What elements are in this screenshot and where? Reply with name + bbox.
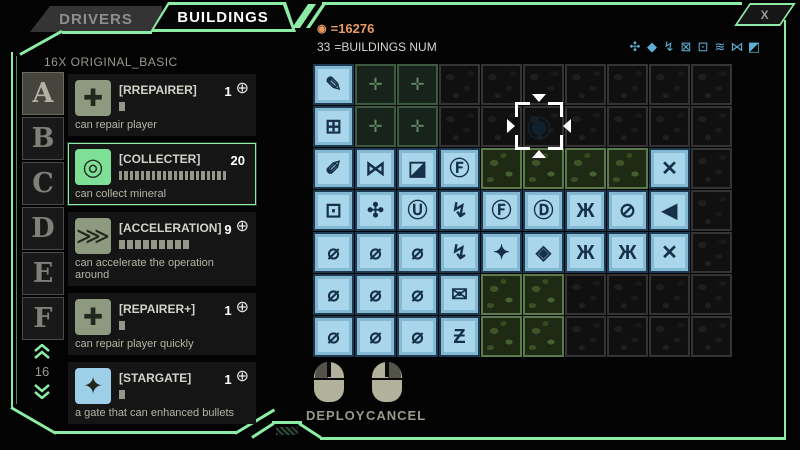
cursor-arrow-icon <box>532 94 546 102</box>
building-description: can accelerate the operation around <box>75 257 249 281</box>
grid-cell-building-tile-r3-c2[interactable]: ⋈ <box>355 148 396 189</box>
building-list: ✚[RREPAIRER]1⊕can repair player◎[COLLECT… <box>68 74 256 424</box>
repairer-icon: ✚ <box>75 80 111 116</box>
building-item-acceleration[interactable]: ⋙[ACCELERATION]9⊕can accelerate the oper… <box>68 212 256 286</box>
letter-tab-a[interactable]: A <box>22 72 64 115</box>
building-description: a gate that can enhanced bullets <box>75 407 249 419</box>
frame-line <box>55 431 237 434</box>
grid-cell-mineral-tile-r6-c5[interactable] <box>481 274 522 315</box>
tile-glyph: ✛ <box>368 76 382 93</box>
tile-glyph: ⊞ <box>325 117 342 137</box>
tile-glyph: ✛ <box>368 118 382 135</box>
tab-drivers[interactable]: DRIVERS <box>30 6 162 32</box>
tile-glyph: ⌀ <box>369 327 381 347</box>
set-header: 16X ORIGINAL_BASIC <box>44 55 178 69</box>
grid-cell-mineral-tile-r3-c5[interactable] <box>481 148 522 189</box>
buildings-count: 33 <box>317 40 330 54</box>
building-name: [STARGATE] <box>119 371 220 385</box>
tile-glyph: ◈ <box>536 243 551 263</box>
count-bar <box>119 102 220 111</box>
add-button[interactable]: ⊕ <box>236 82 249 96</box>
tile-glyph: Ж <box>618 243 636 263</box>
letter-tab-b[interactable]: B <box>22 117 64 160</box>
tile-glyph: ✣ <box>367 201 384 221</box>
building-item-stargate[interactable]: ✦[STARGATE]1⊕a gate that can enhanced bu… <box>68 362 256 424</box>
grid-cell-rock-tile-r6-c8[interactable] <box>607 274 648 315</box>
tile-glyph: ↯ <box>451 243 468 263</box>
scroller: 16 <box>26 344 58 399</box>
building-description: can repair player <box>75 119 249 131</box>
mineral-value: =16276 <box>331 21 375 36</box>
mineral-icon: ◉ <box>317 22 327 35</box>
tile-glyph: ✎ <box>325 75 342 95</box>
grid-cell-building-tile-r4-c4[interactable]: ↯ <box>439 190 480 231</box>
tile-glyph: ⌀ <box>411 243 423 263</box>
cancel-button[interactable]: CANCEL <box>366 408 426 423</box>
letter-tab-e[interactable]: E <box>22 252 64 295</box>
grid-cell-building-tile-r4-c7[interactable]: Ж <box>565 190 606 231</box>
left-mouse-icon <box>314 362 344 402</box>
frame-line <box>784 20 786 438</box>
grid-cell-building-tile-r3-c3[interactable]: ◪ <box>397 148 438 189</box>
add-button[interactable]: ⊕ <box>236 301 249 315</box>
scroll-down-icon[interactable] <box>32 383 52 399</box>
placement-cursor[interactable]: ◉ <box>515 102 563 150</box>
grid-cell-building-tile-r4-c5[interactable]: Ⓕ <box>481 190 522 231</box>
count-bar <box>119 390 220 399</box>
grid-cell-building-tile-r4-c2[interactable]: ✣ <box>355 190 396 231</box>
grid-cell-building-tile-r4-c9[interactable]: ◀ <box>649 190 690 231</box>
grid-cell-building-tile-r5-c8[interactable]: Ж <box>607 232 648 273</box>
tile-glyph: ⌀ <box>411 327 423 347</box>
frame-line <box>320 437 786 440</box>
grid-cell-building-tile-r6-c3[interactable]: ⌀ <box>397 274 438 315</box>
close-button[interactable]: X <box>734 3 796 26</box>
grid-cell-rock-tile-r1-c8[interactable] <box>607 64 648 105</box>
grid-cell-rock-tile-r2-c10[interactable] <box>691 106 732 147</box>
tile-glyph: Ƶ <box>453 327 465 347</box>
grid-cell-rock-tile-r7-c9[interactable] <box>649 316 690 357</box>
grid-cell-building-tile-r4-c3[interactable]: Ⓤ <box>397 190 438 231</box>
tile-glyph: ◀ <box>662 201 677 221</box>
grid-cell-rock-tile-r2-c8[interactable] <box>607 106 648 147</box>
tile-glyph: Ⓓ <box>534 201 554 221</box>
grid-cell-rock-tile-r1-c9[interactable] <box>649 64 690 105</box>
cursor-arrow-icon <box>507 119 515 133</box>
building-name: [REPAIRER+] <box>119 302 220 316</box>
grid-cell-building-tile-r4-c6[interactable]: Ⓓ <box>523 190 564 231</box>
grid-cell-building-tile-r7-c1[interactable]: ⌀ <box>313 316 354 357</box>
deploy-button[interactable]: DEPLOY <box>306 408 365 423</box>
grid-cell-building-tile-r6-c4[interactable]: ✉ <box>439 274 480 315</box>
ghost-building-icon: ◉ <box>515 102 563 150</box>
grid-cell-building-tile-r1-c1[interactable]: ✎ <box>313 64 354 105</box>
grid-cell-rock-tile-r6-c9[interactable] <box>649 274 690 315</box>
tile-glyph: ✉ <box>451 285 468 305</box>
grid-cell-spawner-tile-r2-c2[interactable]: ✛ <box>355 106 396 147</box>
category-icon-strip: ✣◆↯⊠⊡≋⋈◩ <box>628 39 761 55</box>
stargate-icon: ✦ <box>75 368 111 404</box>
tile-glyph: ✛ <box>410 76 424 93</box>
building-name: [ACCELERATION] <box>119 221 220 235</box>
grid-cell-rock-tile-r3-c10[interactable] <box>691 148 732 189</box>
frame-line <box>11 52 13 408</box>
tile-glyph: ⌀ <box>369 285 381 305</box>
grid-cell-rock-tile-r4-c10[interactable] <box>691 190 732 231</box>
grid-cell-rock-tile-r7-c10[interactable] <box>691 316 732 357</box>
close-icon: X <box>761 8 769 22</box>
frame-line <box>298 422 321 439</box>
grid-cell-spawner-tile-r1-c3[interactable]: ✛ <box>397 64 438 105</box>
grid-cell-building-tile-r5-c3[interactable]: ⌀ <box>397 232 438 273</box>
grid-cell-rock-tile-r7-c7[interactable] <box>565 316 606 357</box>
buildings-counter: 33 =BUILDINGS NUM <box>317 40 437 54</box>
building-item-repairer[interactable]: ✚[RREPAIRER]1⊕can repair player <box>68 74 256 136</box>
frame-line <box>16 56 17 404</box>
building-name: [COLLECTER] <box>119 152 227 166</box>
tile-glyph: ⌀ <box>411 285 423 305</box>
acceleration-icon: ⋙ <box>75 218 111 254</box>
tile-glyph: Ж <box>576 243 594 263</box>
grid-cell-building-tile-r2-c1[interactable]: ⊞ <box>313 106 354 147</box>
add-button[interactable]: ⊕ <box>236 370 249 384</box>
frame-decoration <box>276 427 298 435</box>
waves-icon[interactable]: ≋ <box>713 39 727 55</box>
building-count: 20 <box>231 153 245 168</box>
tile-glyph: ✦ <box>493 243 510 263</box>
grid-cell-building-tile-r5-c1[interactable]: ⌀ <box>313 232 354 273</box>
grid-cell-building-tile-r5-c2[interactable]: ⌀ <box>355 232 396 273</box>
letter-tabs: ABCDEF <box>22 72 64 340</box>
diamond-icon[interactable]: ◆ <box>645 39 659 55</box>
tab-buildings-label: BUILDINGS <box>153 5 293 29</box>
grid-cell-rock-tile-r2-c7[interactable] <box>565 106 606 147</box>
grid-cell-mineral-tile-r3-c7[interactable] <box>565 148 606 189</box>
tile-glyph: ↯ <box>451 201 468 221</box>
tile-glyph: ⌀ <box>327 285 339 305</box>
tile-glyph: ⌀ <box>369 243 381 263</box>
tile-glyph: Ⓤ <box>408 201 428 221</box>
tile-glyph: ✕ <box>661 243 678 263</box>
buildings-label: =BUILDINGS NUM <box>334 40 436 54</box>
grid-cell-building-tile-r5-c7[interactable]: Ж <box>565 232 606 273</box>
letter-tab-f[interactable]: F <box>22 297 64 340</box>
grid-cell-rock-tile-r6-c10[interactable] <box>691 274 732 315</box>
grid-cell-spawner-tile-r1-c2[interactable]: ✛ <box>355 64 396 105</box>
tile-glyph: ✛ <box>410 118 424 135</box>
grid-cell-building-tile-r4-c8[interactable]: ⊘ <box>607 190 648 231</box>
cursor-arrow-icon <box>532 150 546 158</box>
tile-glyph: ⋈ <box>366 159 386 179</box>
grid-cell-building-tile-r3-c1[interactable]: ✐ <box>313 148 354 189</box>
frame-line <box>19 30 62 56</box>
repairer-plus-icon: ✚ <box>75 299 111 335</box>
grid-cell-mineral-tile-r7-c6[interactable] <box>523 316 564 357</box>
building-name: [RREPAIRER] <box>119 83 220 97</box>
grid-cell-building-tile-r5-c6[interactable]: ◈ <box>523 232 564 273</box>
grid-cell-building-tile-r7-c3[interactable]: ⌀ <box>397 316 438 357</box>
tile-glyph: ⊡ <box>325 201 342 221</box>
grid-cell-building-tile-r6-c1[interactable]: ⌀ <box>313 274 354 315</box>
grid-cell-building-tile-r4-c1[interactable]: ⊡ <box>313 190 354 231</box>
grid-cell-rock-tile-r1-c10[interactable] <box>691 64 732 105</box>
tile-glyph: Ⓕ <box>492 201 512 221</box>
grid-cell-rock-tile-r1-c7[interactable] <box>565 64 606 105</box>
grid-cell-building-tile-r6-c2[interactable]: ⌀ <box>355 274 396 315</box>
tile-glyph: ⊘ <box>619 201 636 221</box>
collecter-icon: ◎ <box>75 149 111 185</box>
tile-glyph: ✐ <box>325 159 342 179</box>
scroll-count: 16 <box>35 364 49 379</box>
grid-cell-building-tile-r7-c2[interactable]: ⌀ <box>355 316 396 357</box>
grid-cell-mineral-tile-r3-c8[interactable] <box>607 148 648 189</box>
frame-line <box>322 2 742 5</box>
grid-cell-spawner-tile-r2-c3[interactable]: ✛ <box>397 106 438 147</box>
grid-cell-rock-tile-r1-c5[interactable] <box>481 64 522 105</box>
grid-cell-rock-tile-r2-c9[interactable] <box>649 106 690 147</box>
grid-cell-mineral-tile-r7-c5[interactable] <box>481 316 522 357</box>
building-count: 1 <box>224 84 231 99</box>
tile-glyph: Ⓕ <box>450 159 470 179</box>
grid-cell-building-tile-r5-c4[interactable]: ↯ <box>439 232 480 273</box>
frame-line <box>10 406 57 435</box>
grid-cell-building-tile-r7-c4[interactable]: Ƶ <box>439 316 480 357</box>
grid-cell-mineral-tile-r6-c6[interactable] <box>523 274 564 315</box>
gear-icon[interactable]: ✣ <box>628 39 642 55</box>
building-item-repairer-plus[interactable]: ✚[REPAIRER+]1⊕can repair player quickly <box>68 293 256 355</box>
building-description: can collect mineral <box>75 188 249 200</box>
grid-cell-rock-tile-r5-c10[interactable] <box>691 232 732 273</box>
grid-cell-rock-tile-r7-c8[interactable] <box>607 316 648 357</box>
right-mouse-icon <box>372 362 402 402</box>
count-bar <box>119 171 227 180</box>
scroll-up-icon[interactable] <box>32 344 52 360</box>
add-button[interactable]: ⊕ <box>236 220 249 234</box>
hourglass-icon[interactable]: ⋈ <box>730 39 744 55</box>
bolt-icon[interactable]: ↯ <box>662 39 676 55</box>
tile-glyph: ⌀ <box>327 327 339 347</box>
game-window: DRIVERS BUILDINGS X 16X ORIGINAL_BASIC A… <box>0 0 800 450</box>
frame-line <box>62 31 152 34</box>
grid-cell-building-tile-r5-c9[interactable]: ✕ <box>649 232 690 273</box>
tile-glyph: ✕ <box>661 159 678 179</box>
grid-cell-rock-tile-r2-c4[interactable] <box>439 106 480 147</box>
grid-cell-building-tile-r5-c5[interactable]: ✦ <box>481 232 522 273</box>
grid-cell-rock-tile-r6-c7[interactable] <box>565 274 606 315</box>
tile-glyph: Ж <box>576 201 594 221</box>
tile-glyph: ⌀ <box>327 243 339 263</box>
grid-cell-building-tile-r3-c9[interactable]: ✕ <box>649 148 690 189</box>
grid-icon[interactable]: ⊠ <box>679 39 693 55</box>
building-description: can repair player quickly <box>75 338 249 350</box>
grid-cell-rock-tile-r1-c4[interactable] <box>439 64 480 105</box>
box-icon[interactable]: ⊡ <box>696 39 710 55</box>
building-count: 9 <box>224 222 231 237</box>
building-count: 1 <box>224 372 231 387</box>
tab-buildings[interactable]: BUILDINGS <box>150 2 296 32</box>
letter-tab-c[interactable]: C <box>22 162 64 205</box>
tiles-icon[interactable]: ◩ <box>747 39 761 55</box>
letter-tab-d[interactable]: D <box>22 207 64 250</box>
building-item-collecter[interactable]: ◎[COLLECTER]20can collect mineral <box>68 143 256 205</box>
building-count: 1 <box>224 303 231 318</box>
cursor-arrow-icon <box>563 119 571 133</box>
tile-glyph: ◪ <box>408 159 427 179</box>
count-bar <box>119 240 220 249</box>
grid-cell-building-tile-r3-c4[interactable]: Ⓕ <box>439 148 480 189</box>
mineral-counter: ◉ =16276 <box>317 21 374 36</box>
count-bar <box>119 321 220 330</box>
frame-line <box>251 422 274 439</box>
